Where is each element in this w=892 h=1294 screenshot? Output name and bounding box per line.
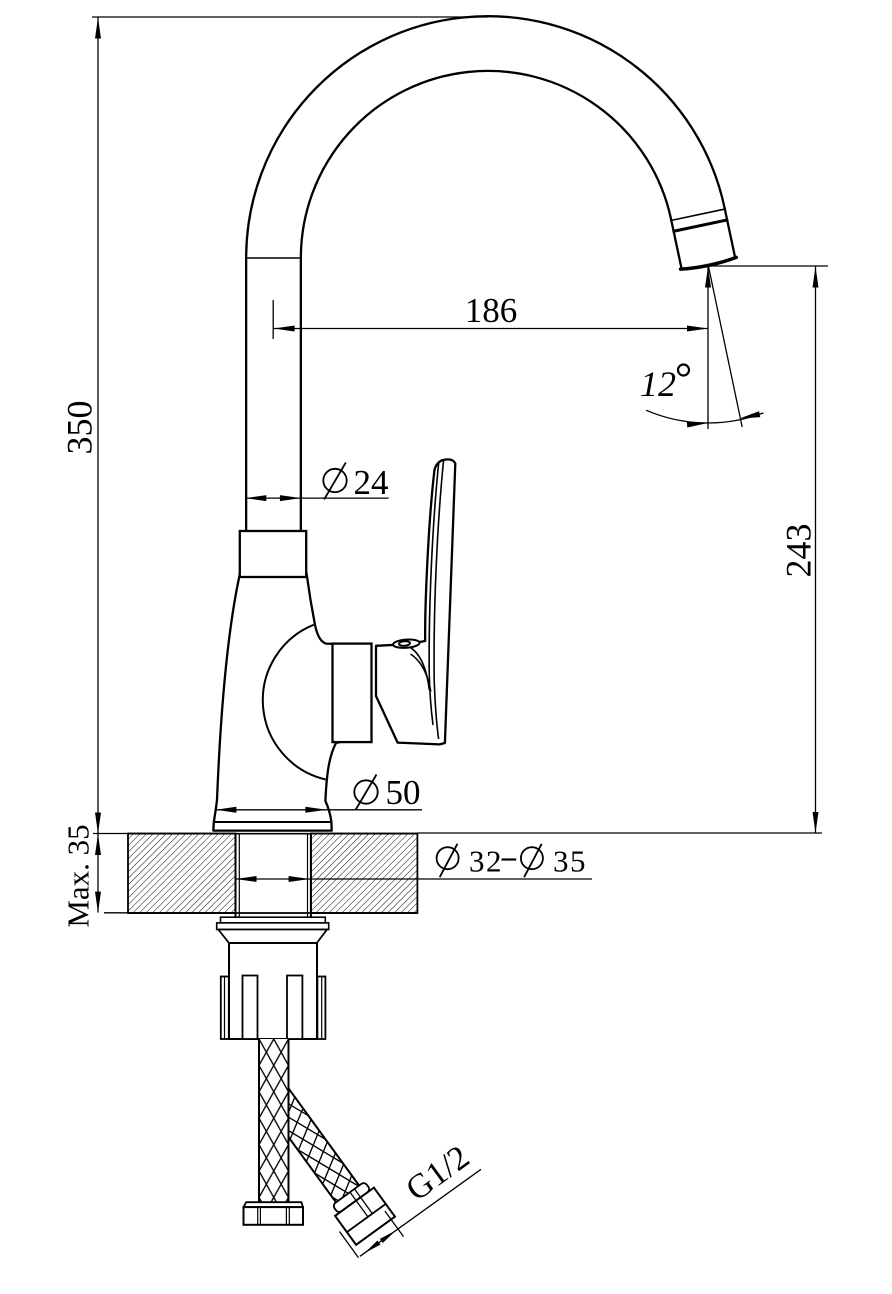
svg-text:186: 186 bbox=[465, 291, 518, 330]
svg-text:12: 12 bbox=[640, 364, 676, 404]
svg-text:50: 50 bbox=[386, 773, 421, 812]
svg-text:35: 35 bbox=[553, 844, 587, 879]
svg-text:243: 243 bbox=[779, 524, 819, 578]
svg-text:24: 24 bbox=[354, 463, 389, 502]
svg-text:350: 350 bbox=[60, 401, 100, 455]
svg-text:Max. 35: Max. 35 bbox=[61, 824, 96, 927]
svg-text:32: 32 bbox=[469, 844, 503, 879]
